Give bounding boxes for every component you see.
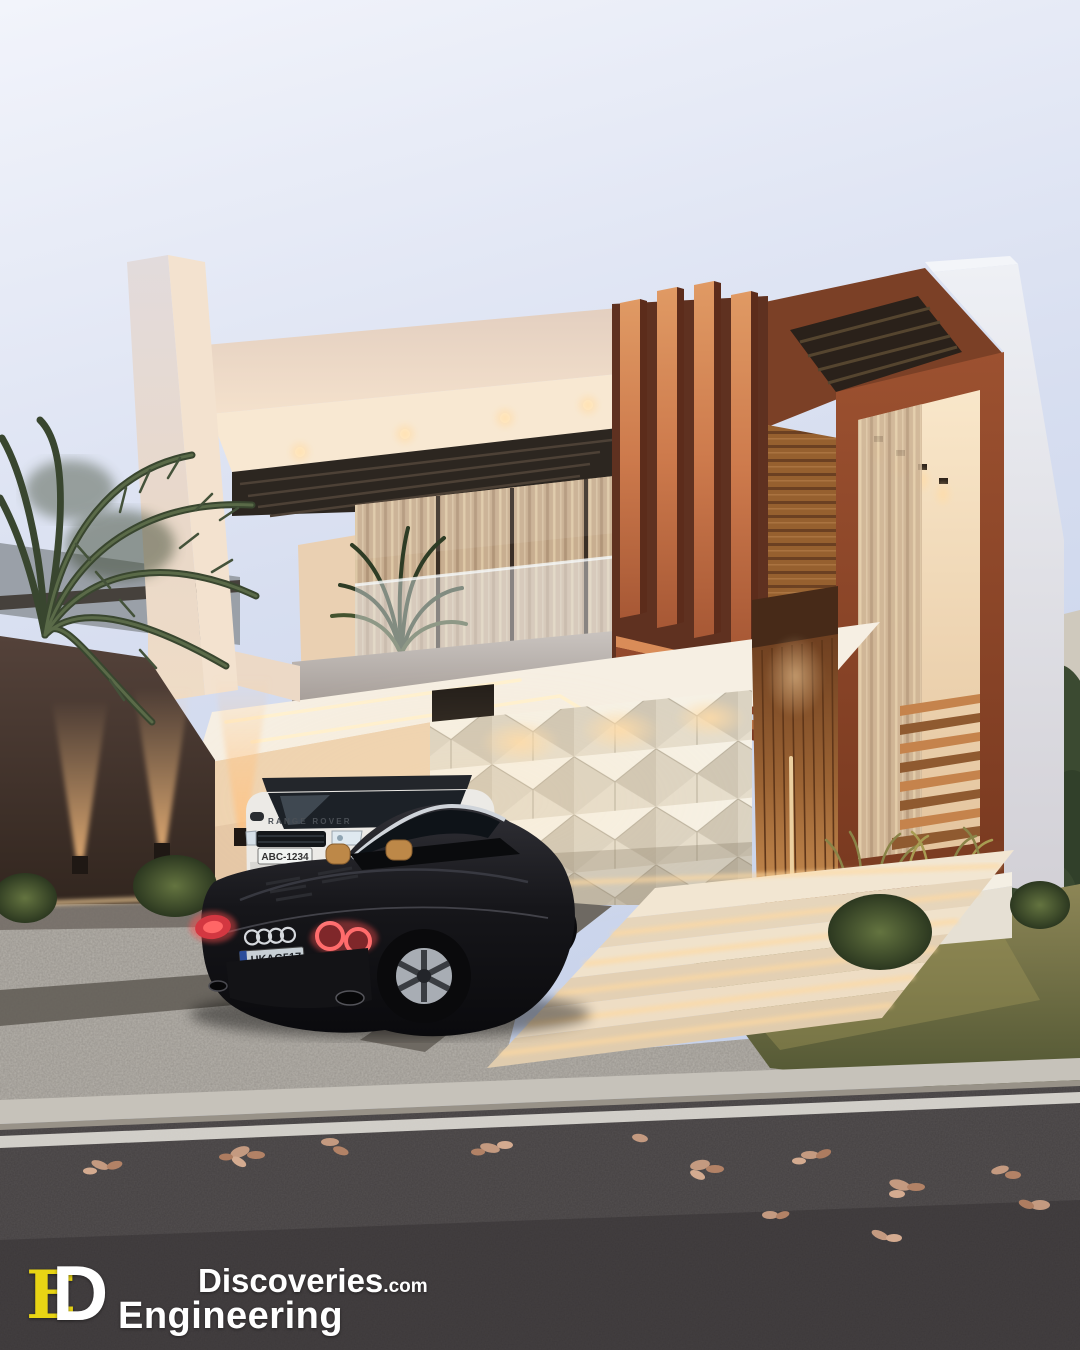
logo-monogram-d: D (52, 1254, 108, 1332)
logo-text: Discoveries.com Engineering (118, 1264, 428, 1336)
door-handle (791, 758, 792, 878)
logo-line1: Discoveries.com (118, 1264, 428, 1298)
car-headrest-left (326, 844, 350, 864)
front-door (752, 586, 838, 908)
suv-headlight-left (246, 831, 256, 845)
door-downlight-glow (765, 634, 825, 718)
scene-canvas: RANGE ROVER ABC-1234 (0, 0, 1080, 1350)
range-rover-hood-text: RANGE ROVER (268, 817, 352, 826)
suv-headlight-right (332, 831, 362, 845)
exhaust-right (336, 991, 364, 1005)
logo-line2: Engineering (118, 1297, 428, 1336)
suv-grille (256, 831, 326, 847)
architectural-photo: RANGE ROVER ABC-1234 (0, 0, 1080, 1350)
logo-monogram: E D (26, 1260, 112, 1336)
logo-brand-top: Discoveries (198, 1262, 383, 1299)
rear-wheel (377, 929, 471, 1023)
suv-mirror-left (250, 812, 264, 821)
wall-uplight (52, 676, 270, 874)
logo-brand-suffix: .com (383, 1276, 427, 1297)
suv-plate-text: ABC-1234 (261, 852, 309, 863)
watermark: E D Discoveries.com Engineering (26, 1260, 428, 1336)
car-headrest-right (386, 840, 412, 860)
taillight-left (189, 911, 237, 943)
exhaust-left (209, 981, 227, 991)
